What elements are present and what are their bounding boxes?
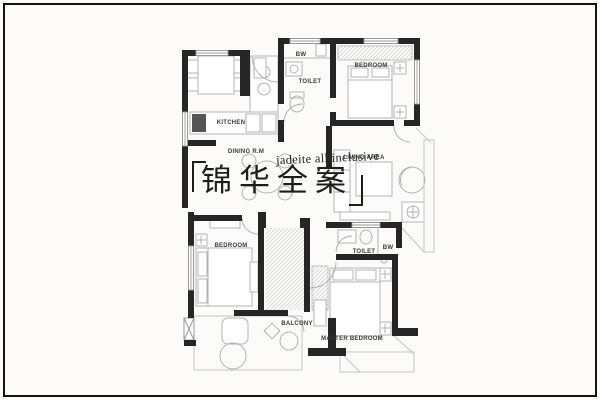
brand-title-char-4: 案 bbox=[315, 165, 346, 196]
brand-title-char-2: 华 bbox=[239, 165, 270, 196]
brand-title-char-1: 锦 bbox=[201, 165, 232, 196]
brand-title-char-3: 全 bbox=[277, 165, 308, 196]
room-label-balcony: BALCONY bbox=[281, 321, 312, 327]
corner-bracket-close-icon bbox=[349, 175, 363, 206]
brand-title-chinese: 锦 华 全 案 bbox=[201, 165, 346, 196]
room-label-bedroom-lower: BEDROOM bbox=[214, 243, 247, 249]
room-label-bw-lower: BW bbox=[383, 245, 394, 251]
room-label-toilet-top: TOILET bbox=[299, 79, 322, 85]
room-label-master-bedroom: MASTER BEDROOM bbox=[321, 336, 383, 342]
room-label-kitchen: KITCHEN bbox=[217, 120, 245, 126]
room-label-toilet-lower: TOILET bbox=[353, 249, 376, 255]
room-label-bw-top: BW bbox=[296, 52, 307, 58]
room-label-dining: DINING R.M bbox=[228, 149, 264, 155]
floorplan-poster: KITCHEN DINING R.M BW TOILET BEDROOM LIV… bbox=[0, 0, 600, 400]
room-label-bedroom-top: BEDROOM bbox=[354, 63, 387, 69]
floor-plan-drawing: KITCHEN DINING R.M BW TOILET BEDROOM LIV… bbox=[0, 0, 600, 400]
